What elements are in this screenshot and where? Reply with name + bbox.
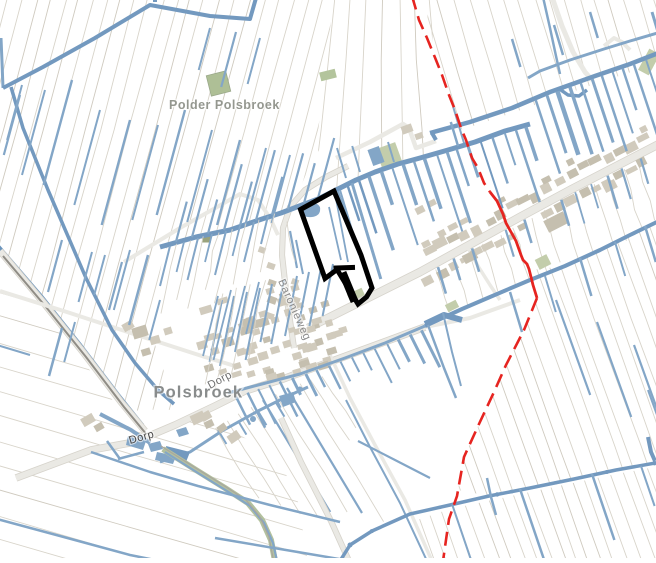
svg-text:Polsbroek: Polsbroek bbox=[154, 384, 244, 402]
svg-text:Polder Polsbroek: Polder Polsbroek bbox=[169, 98, 280, 112]
